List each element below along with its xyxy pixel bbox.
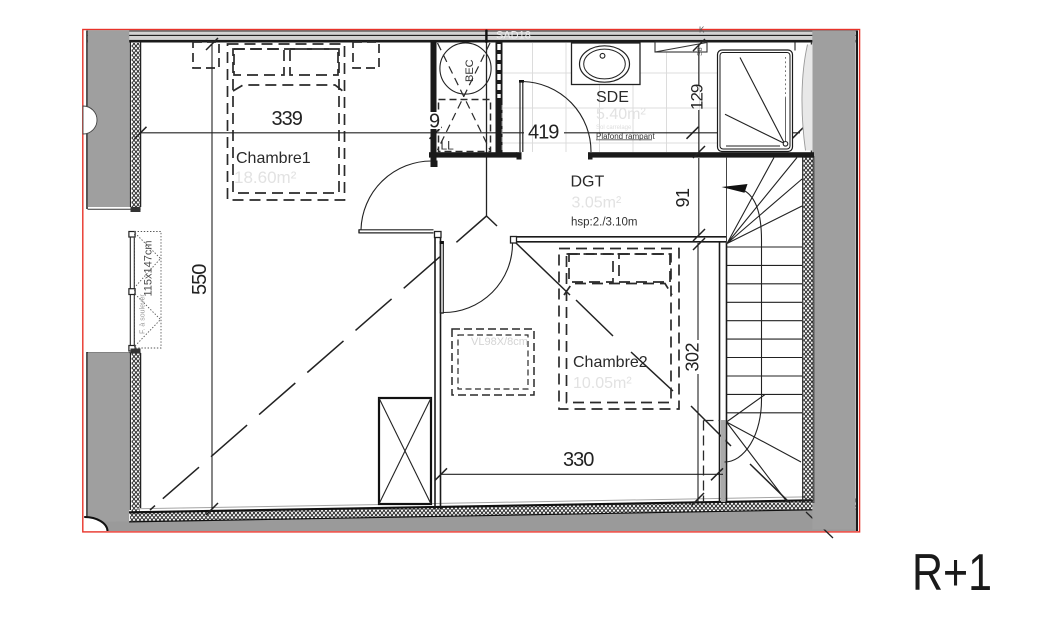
- svg-text:S8: S8: [697, 47, 704, 56]
- svg-text:SAD18: SAD18: [496, 30, 531, 42]
- svg-text:BEC: BEC: [464, 59, 476, 82]
- svg-text:Chambre1: Chambre1: [236, 150, 311, 167]
- svg-text:419: 419: [528, 122, 559, 144]
- svg-text:5.40m²: 5.40m²: [596, 106, 646, 123]
- svg-text:550: 550: [189, 264, 211, 295]
- svg-text:VL98X/8cm: VL98X/8cm: [471, 336, 528, 348]
- svg-text:129: 129: [688, 84, 707, 110]
- svg-text:Sol carrelage: Sol carrelage: [596, 125, 632, 131]
- svg-text:115x147cm: 115x147cm: [143, 240, 155, 296]
- svg-text:330: 330: [563, 449, 594, 471]
- svg-text:Chambre2: Chambre2: [573, 354, 648, 371]
- svg-text:10.05m²: 10.05m²: [573, 375, 632, 392]
- svg-text:hsp:2./3.10m: hsp:2./3.10m: [571, 217, 637, 229]
- svg-text:DGT: DGT: [571, 174, 605, 191]
- svg-text:302: 302: [683, 342, 703, 371]
- svg-text:LL: LL: [441, 139, 455, 153]
- svg-text:K: K: [699, 26, 705, 35]
- svg-text:339: 339: [272, 108, 303, 130]
- svg-text:9: 9: [429, 111, 440, 133]
- svg-text:3.05m²: 3.05m²: [572, 195, 622, 212]
- svg-text:R+1: R+1: [912, 544, 992, 602]
- svg-text:91: 91: [673, 188, 693, 208]
- svg-text:18.60m²: 18.60m²: [234, 168, 297, 187]
- svg-text:F. à soulever: F. à soulever: [140, 294, 147, 334]
- svg-text:SDE: SDE: [596, 89, 629, 106]
